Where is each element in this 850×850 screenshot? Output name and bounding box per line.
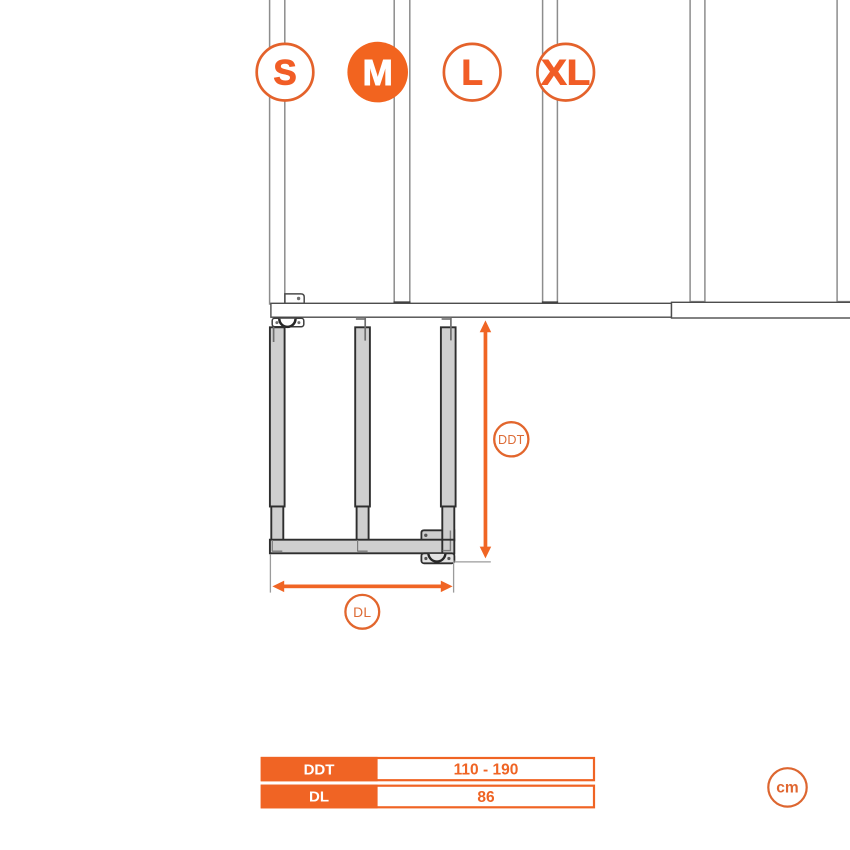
svg-text:S: S xyxy=(273,53,296,92)
svg-text:86: 86 xyxy=(477,789,495,806)
svg-text:DDT: DDT xyxy=(304,761,335,778)
svg-text:cm: cm xyxy=(776,780,798,797)
svg-text:DDT: DDT xyxy=(498,433,525,447)
svg-text:M: M xyxy=(362,52,392,93)
svg-text:XL: XL xyxy=(541,53,590,92)
svg-text:DL: DL xyxy=(353,605,371,620)
svg-text:DL: DL xyxy=(309,789,329,806)
svg-text:L: L xyxy=(462,53,483,92)
svg-text:110 - 190: 110 - 190 xyxy=(454,762,519,779)
